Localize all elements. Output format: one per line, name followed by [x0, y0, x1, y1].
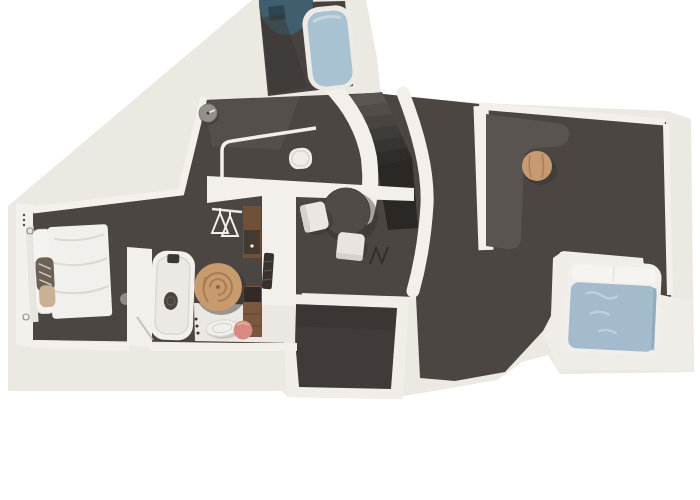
wall-socket-1: [23, 214, 25, 216]
wooden-stool: [522, 151, 552, 181]
wardrobe-shelf: [244, 230, 260, 254]
left-bedroom-bottom-wall: [30, 344, 129, 347]
floor-plan-svg: [0, 0, 700, 500]
bed-right-duvet: [568, 282, 657, 352]
wardrobe-knob: [250, 244, 254, 248]
fixture-dot-1: [194, 317, 197, 320]
floor-plan: [0, 0, 700, 500]
wall-socket-3: [23, 224, 25, 226]
wicker-pouf-center: [216, 285, 220, 289]
wall-clock-center: [207, 112, 210, 115]
balcony-floor-shade: [292, 304, 397, 330]
bed-left-throw: [39, 285, 56, 308]
bed-left-duvet: [48, 224, 113, 319]
room-divider-wall: [481, 106, 486, 250]
fixture-dot-2: [195, 324, 198, 327]
left-bathtub-faucet: [167, 254, 179, 263]
wall-socket-2: [23, 219, 25, 221]
bed-right-pillow-split: [613, 266, 614, 282]
fixture-dot-3: [196, 331, 199, 334]
right-room-right-wall: [666, 124, 670, 295]
